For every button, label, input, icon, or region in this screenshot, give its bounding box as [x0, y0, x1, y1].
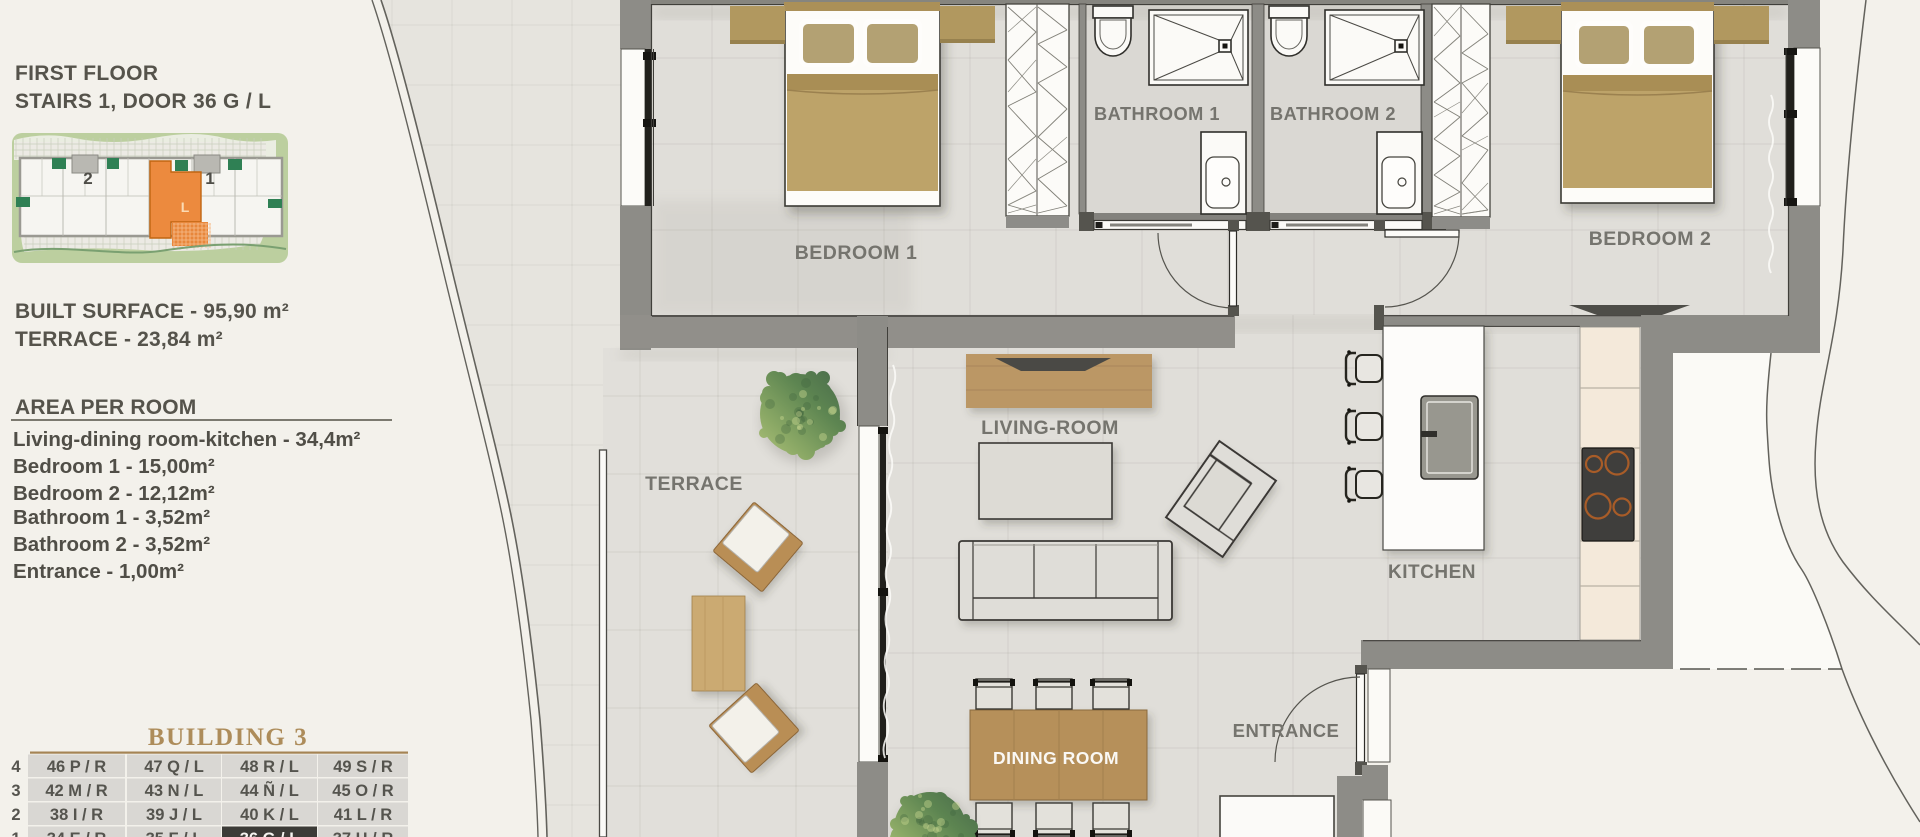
svg-text:42 M / R: 42 M / R: [45, 782, 107, 800]
svg-text:38 I / R: 38 I / R: [50, 806, 103, 824]
svg-text:45 O / R: 45 O / R: [332, 782, 394, 800]
svg-text:40 K / L: 40 K / L: [240, 806, 299, 824]
svg-text:TERRACE: TERRACE: [645, 473, 743, 495]
svg-text:4: 4: [11, 758, 21, 776]
svg-text:47 Q / L: 47 Q / L: [144, 758, 204, 776]
svg-text:46 P / R: 46 P / R: [47, 758, 106, 776]
svg-text:48 R / L: 48 R / L: [240, 758, 299, 776]
svg-text:AREA PER ROOM: AREA PER ROOM: [15, 396, 197, 419]
svg-text:2: 2: [83, 169, 92, 188]
svg-text:3: 3: [11, 782, 20, 800]
svg-text:36 G / L: 36 G / L: [240, 830, 300, 837]
svg-text:35 F / L: 35 F / L: [146, 830, 203, 837]
svg-text:43 N / L: 43 N / L: [145, 782, 204, 800]
svg-text:1: 1: [205, 169, 214, 188]
svg-text:2: 2: [11, 806, 20, 824]
svg-text:34 E / R: 34 E / R: [47, 830, 107, 837]
svg-text:L: L: [181, 199, 190, 215]
svg-text:ENTRANCE: ENTRANCE: [1233, 720, 1340, 741]
svg-text:FIRST FLOOR: FIRST FLOOR: [15, 62, 158, 85]
svg-text:BUILDING 3: BUILDING 3: [148, 724, 308, 751]
svg-text:KITCHEN: KITCHEN: [1388, 562, 1476, 583]
svg-text:DINING ROOM: DINING ROOM: [993, 748, 1119, 768]
svg-text:BEDROOM 2: BEDROOM 2: [1589, 228, 1712, 250]
svg-text:44 Ñ / L: 44 Ñ / L: [240, 780, 299, 800]
svg-text:STAIRS 1, DOOR 36 G / L: STAIRS 1, DOOR 36 G / L: [15, 90, 271, 113]
svg-text:Entrance - 1,00m²: Entrance - 1,00m²: [13, 560, 184, 583]
svg-text:Bathroom 1 - 3,52m²: Bathroom 1 - 3,52m²: [13, 506, 210, 529]
svg-text:Bathroom 2 - 3,52m²: Bathroom 2 - 3,52m²: [13, 533, 210, 556]
svg-text:BATHROOM 2: BATHROOM 2: [1270, 104, 1396, 124]
svg-text:37 H / R: 37 H / R: [333, 830, 394, 837]
svg-text:BEDROOM 1: BEDROOM 1: [795, 242, 918, 264]
svg-text:49 S / R: 49 S / R: [333, 758, 393, 776]
svg-text:LIVING-ROOM: LIVING-ROOM: [981, 417, 1119, 439]
svg-text:BUILT SURFACE - 95,90 m²: BUILT SURFACE - 95,90 m²: [15, 300, 289, 323]
svg-text:Living-dining room-kitchen - 3: Living-dining room-kitchen - 34,4m²: [13, 428, 361, 451]
svg-text:41 L / R: 41 L / R: [334, 806, 392, 824]
svg-text:39 J / L: 39 J / L: [146, 806, 202, 824]
svg-text:1: 1: [11, 830, 20, 837]
svg-text:Bedroom 1 - 15,00m²: Bedroom 1 - 15,00m²: [13, 455, 215, 478]
svg-text:BATHROOM 1: BATHROOM 1: [1094, 104, 1220, 124]
svg-text:TERRACE - 23,84 m²: TERRACE - 23,84 m²: [15, 328, 223, 351]
svg-text:Bedroom 2 - 12,12m²: Bedroom 2 - 12,12m²: [13, 482, 215, 505]
